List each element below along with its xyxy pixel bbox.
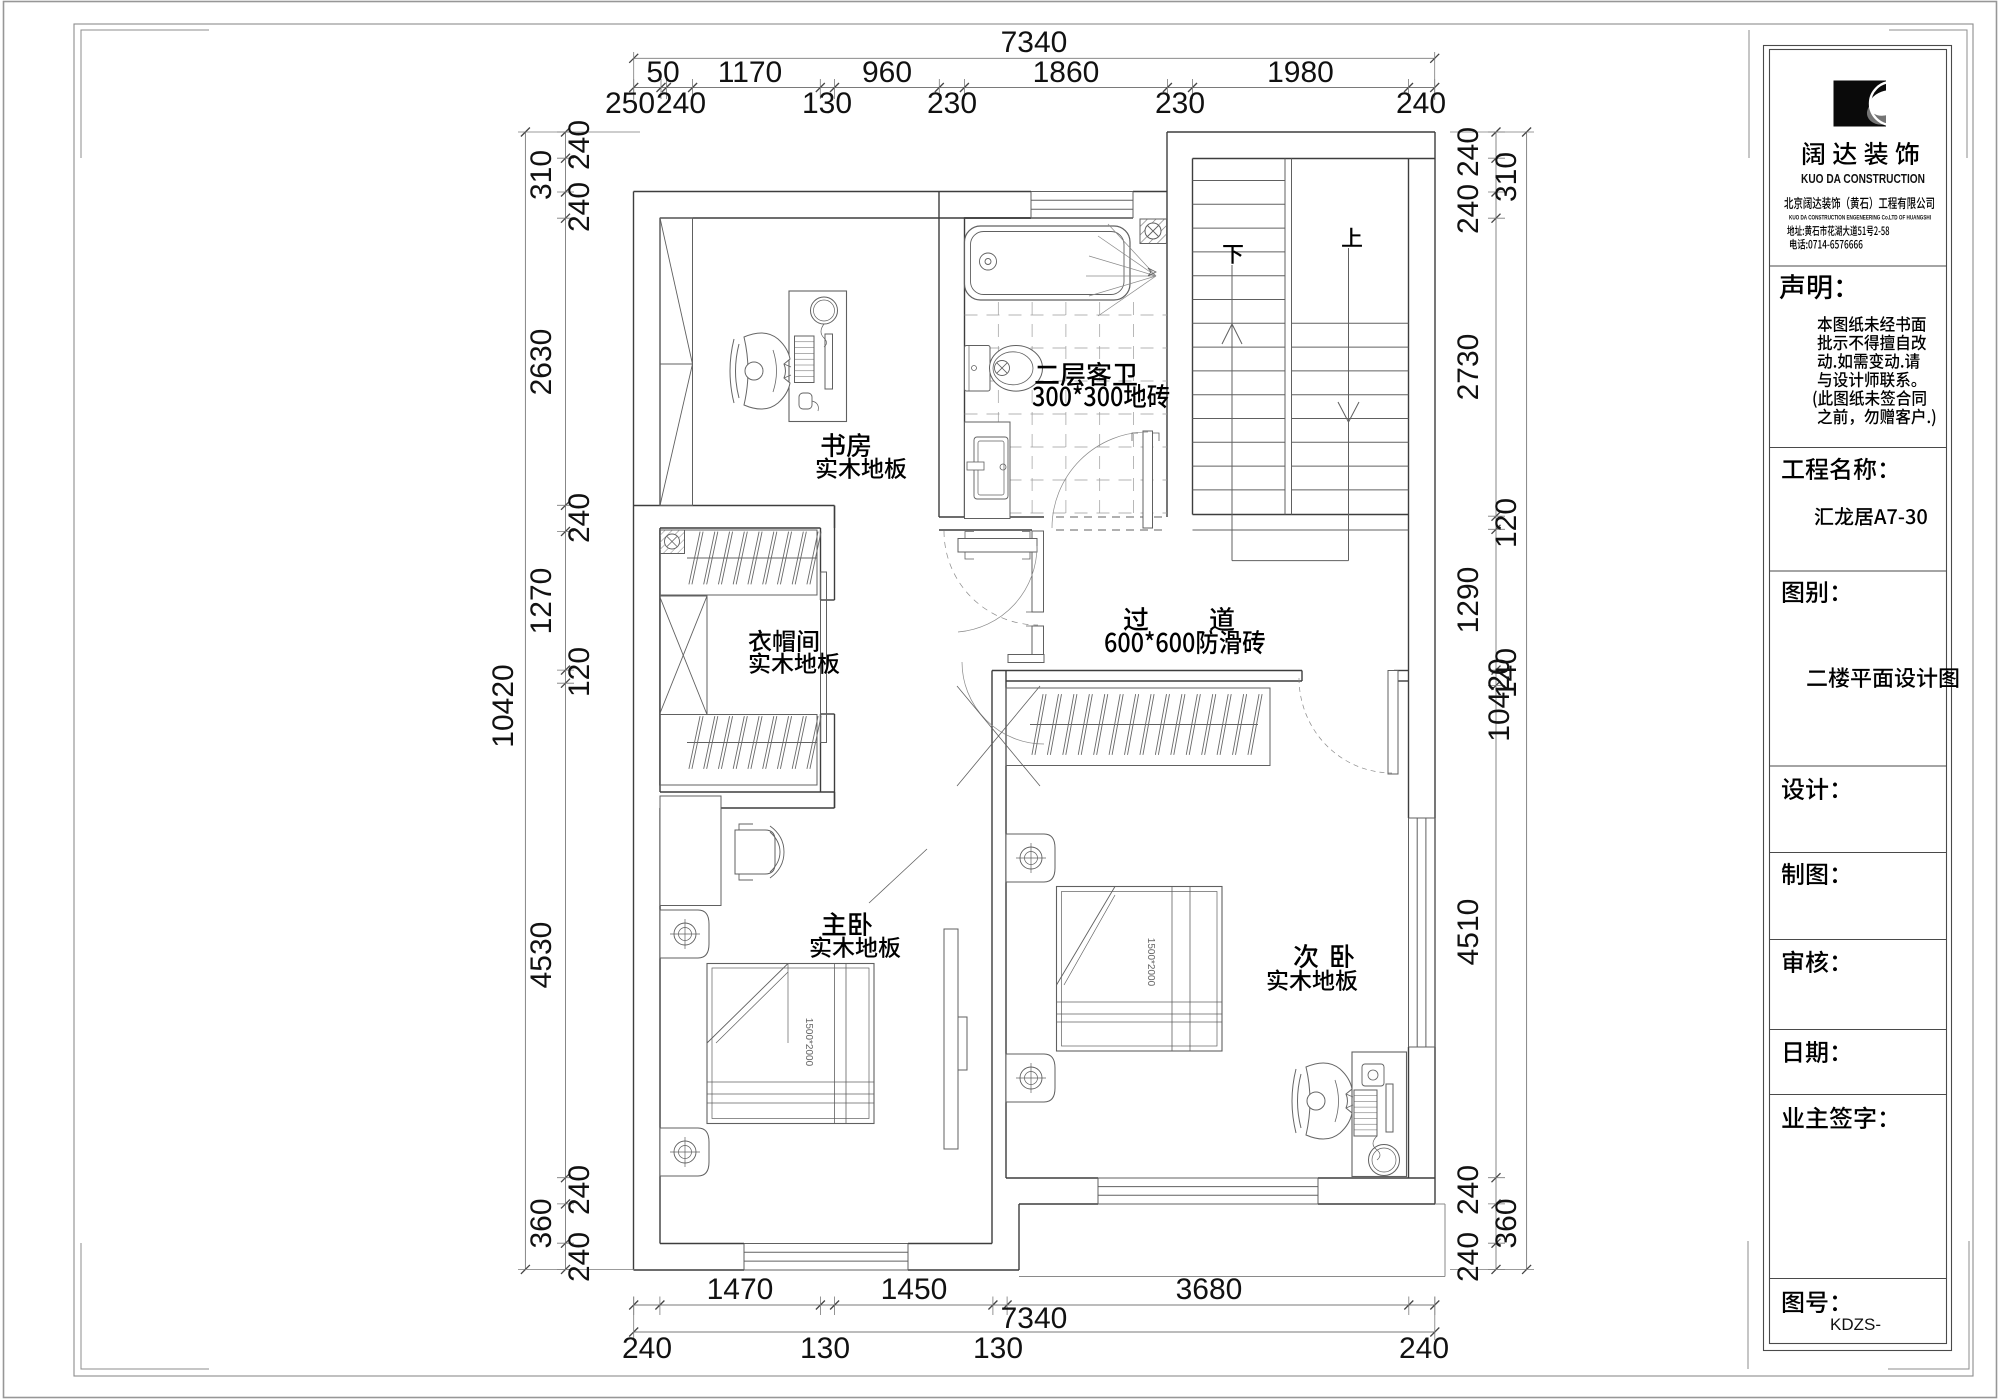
svg-text:240: 240	[656, 87, 706, 120]
svg-text:50: 50	[646, 56, 679, 89]
svg-text:7340: 7340	[1001, 1302, 1068, 1335]
svg-text:KUO DA CONSTRUCTION: KUO DA CONSTRUCTION	[1801, 171, 1925, 186]
svg-text:240: 240	[1452, 1165, 1485, 1215]
svg-text:240: 240	[1452, 1232, 1485, 1282]
svg-text:240: 240	[563, 182, 596, 232]
svg-text:360: 360	[1490, 1198, 1523, 1248]
svg-text:120: 120	[1490, 498, 1523, 548]
svg-text:KUO DA CONSTRUCTION ENGENEERIN: KUO DA CONSTRUCTION ENGENEERING Co.LTD O…	[1789, 215, 1931, 222]
svg-text:230: 230	[927, 87, 977, 120]
svg-text:240: 240	[622, 1332, 672, 1365]
svg-text:120: 120	[563, 647, 596, 697]
svg-text:1290: 1290	[1452, 567, 1485, 634]
svg-text:130: 130	[973, 1332, 1023, 1365]
svg-text:240: 240	[563, 493, 596, 543]
svg-text:1470: 1470	[707, 1273, 774, 1306]
svg-text:1500*2000: 1500*2000	[1145, 938, 1156, 987]
svg-text:230: 230	[1155, 87, 1205, 120]
svg-text:250: 250	[605, 87, 655, 120]
svg-text:960: 960	[862, 56, 912, 89]
svg-text:310: 310	[1490, 152, 1523, 202]
svg-text:10420: 10420	[1483, 658, 1516, 741]
svg-text:1860: 1860	[1033, 56, 1100, 89]
svg-text:2630: 2630	[525, 329, 558, 396]
svg-text:2730: 2730	[1452, 334, 1485, 401]
svg-text:4510: 4510	[1452, 899, 1485, 966]
svg-text:240: 240	[1452, 127, 1485, 177]
svg-text:130: 130	[802, 87, 852, 120]
svg-text:240: 240	[563, 1232, 596, 1282]
svg-text:1980: 1980	[1267, 56, 1334, 89]
svg-text:KDZS-: KDZS-	[1830, 1315, 1881, 1334]
svg-text:240: 240	[563, 1165, 596, 1215]
svg-text:130: 130	[800, 1332, 850, 1365]
svg-text:1170: 1170	[718, 56, 783, 89]
svg-text:1450: 1450	[881, 1273, 948, 1306]
svg-text:360: 360	[525, 1198, 558, 1248]
svg-text:3680: 3680	[1176, 1273, 1243, 1306]
svg-text:1500*2000: 1500*2000	[803, 1018, 814, 1067]
svg-text:1270: 1270	[525, 568, 558, 635]
svg-text:240: 240	[1452, 184, 1485, 234]
svg-text:7340: 7340	[1001, 26, 1068, 59]
svg-text:4530: 4530	[525, 922, 558, 989]
svg-text:240: 240	[1396, 87, 1446, 120]
svg-text:240: 240	[1399, 1332, 1449, 1365]
svg-text:10420: 10420	[487, 664, 520, 747]
svg-text:240: 240	[563, 120, 596, 170]
svg-text:310: 310	[525, 150, 558, 200]
